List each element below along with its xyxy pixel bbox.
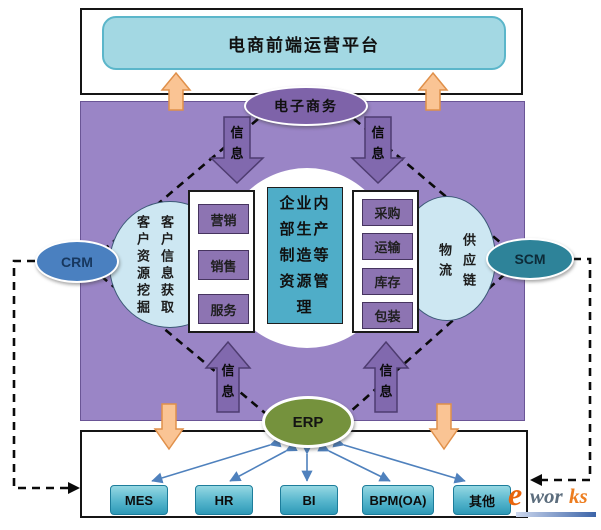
orange-arrow-down-right (430, 404, 458, 449)
eworks-logo-ks: ks (569, 484, 588, 509)
connector-erp-other (344, 445, 465, 481)
crm-node: CRM (35, 240, 119, 283)
eworks-logo-e: e (508, 476, 522, 513)
ecommerce-node: 电子商务 (244, 86, 368, 126)
diagram-canvas: 电商前端运营平台 客户信息获取 客户资源挖掘 供应链 物流 营销 销售 服务 (0, 0, 601, 530)
orange-arrow-up-right (419, 73, 447, 110)
info-label-bottom-left: 信息 (219, 360, 237, 402)
info-label-top-left: 信息 (228, 122, 246, 164)
erp-node: ERP (262, 396, 354, 448)
scm-node: SCM (486, 238, 574, 280)
orange-arrow-down-left (155, 404, 183, 449)
connector-erp-mes (152, 445, 270, 481)
eworks-logo-wor: wor (530, 484, 563, 509)
eworks-logo: e wor ks (506, 474, 600, 520)
orange-arrow-up-left (162, 73, 190, 110)
eworks-logo-underline (516, 512, 596, 517)
info-label-bottom-right: 信息 (377, 360, 395, 402)
connector-erp-hr (230, 451, 286, 481)
info-label-top-right: 信息 (369, 122, 387, 164)
